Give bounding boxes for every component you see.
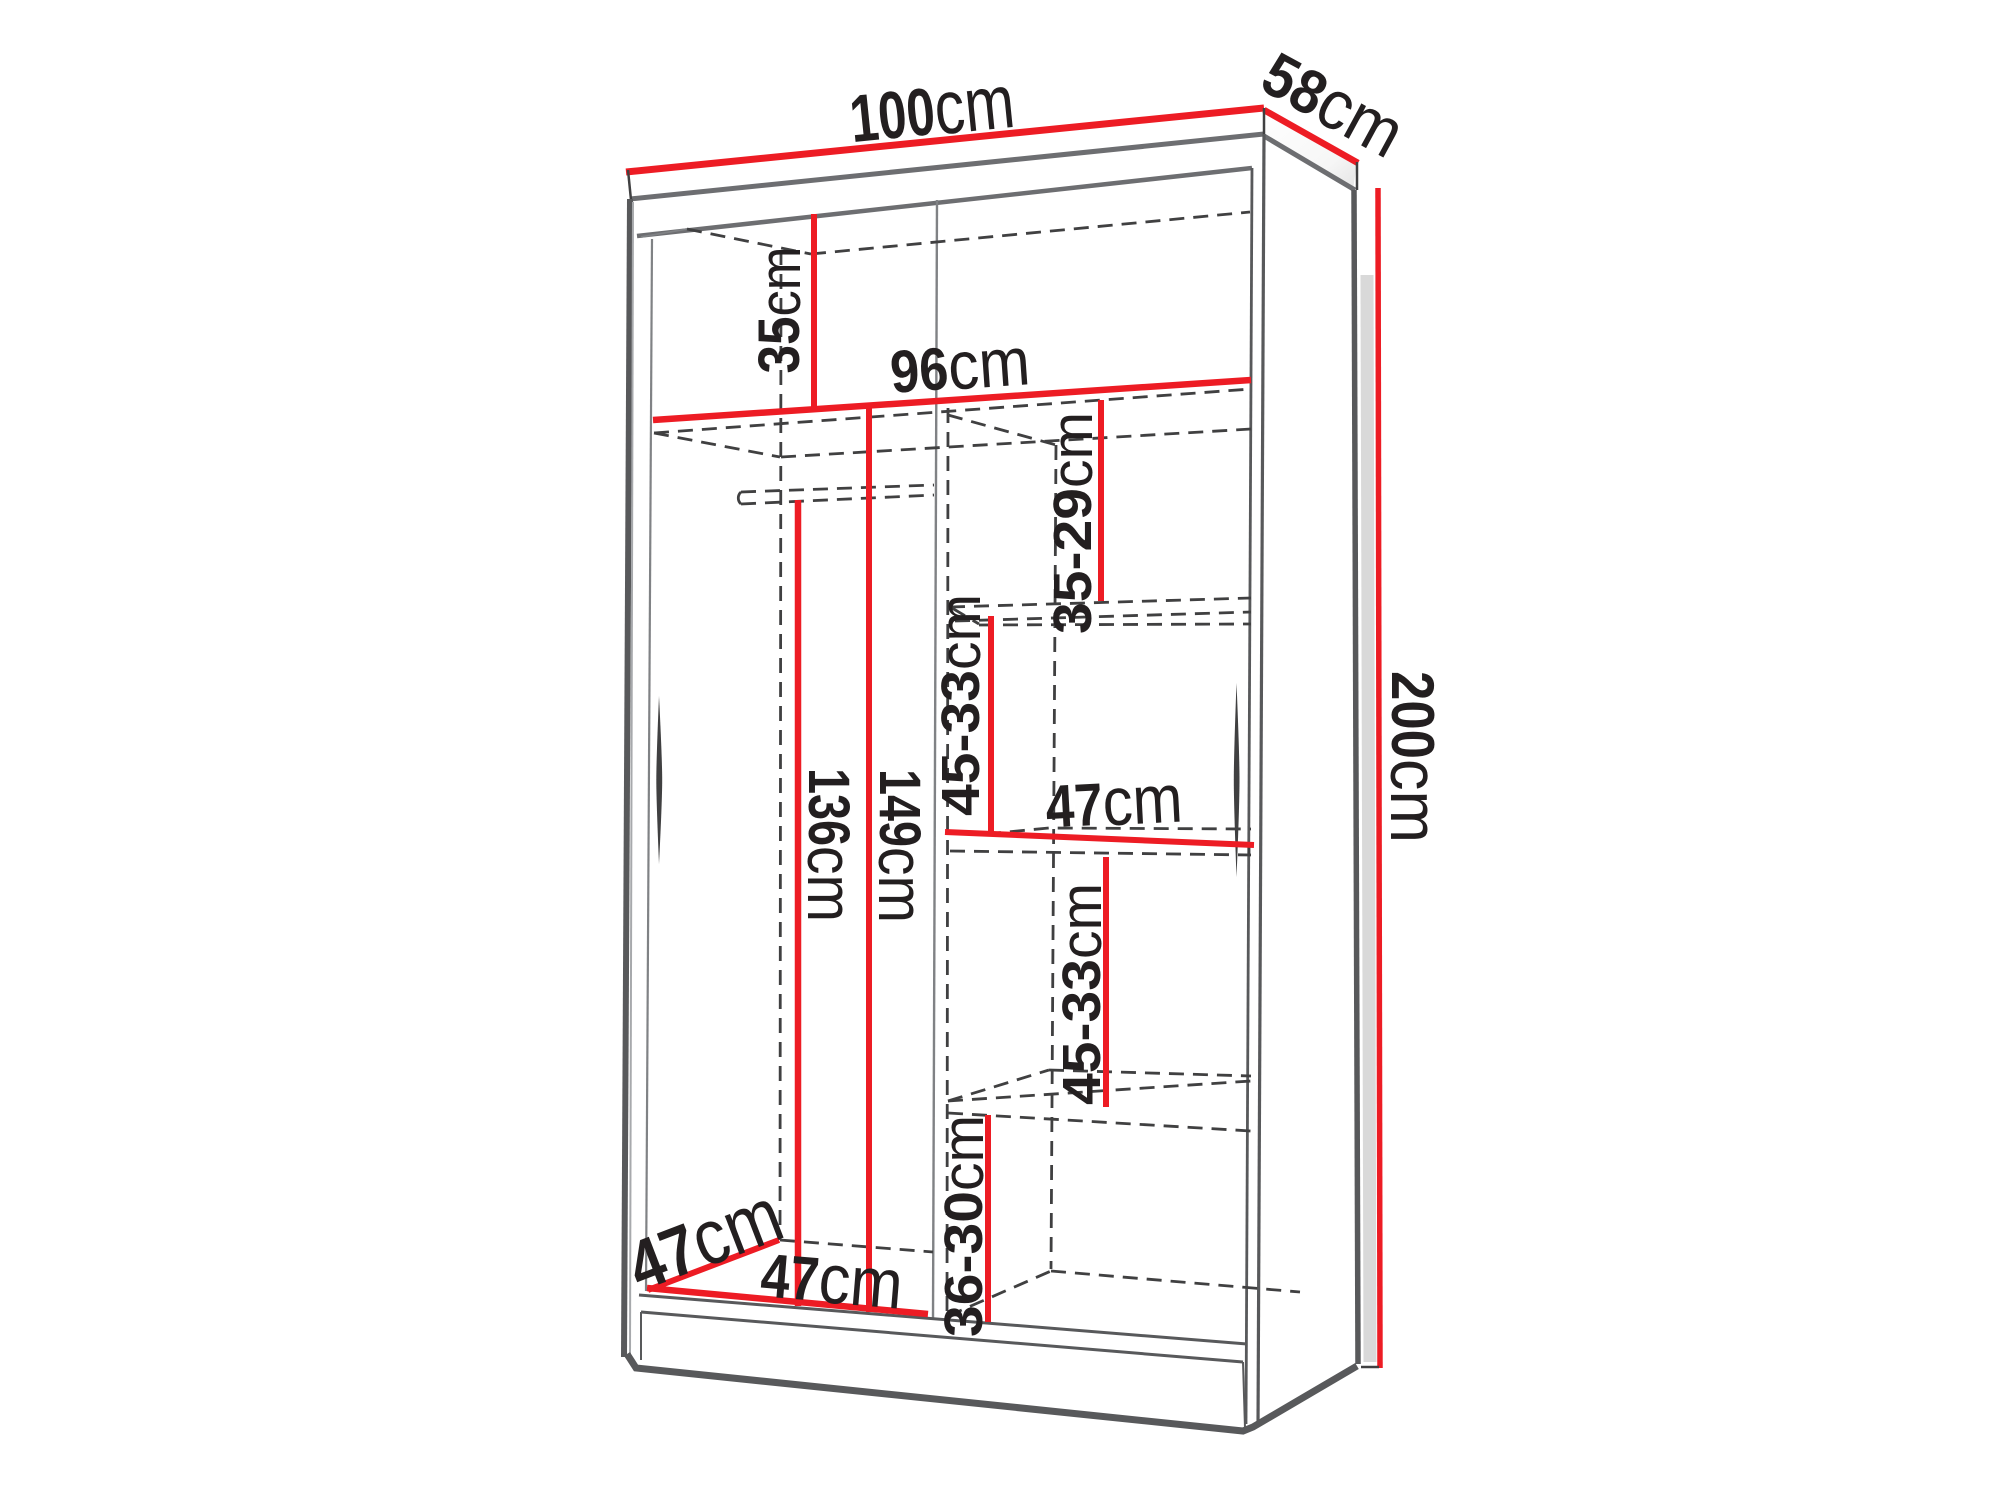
svg-text:45-33cm: 45-33cm	[1049, 883, 1114, 1105]
svg-text:100cm: 100cm	[846, 59, 1019, 160]
svg-text:136cm: 136cm	[794, 768, 866, 922]
svg-text:45-33cm: 45-33cm	[928, 594, 993, 816]
svg-text:200cm: 200cm	[1376, 671, 1452, 843]
svg-text:149cm: 149cm	[865, 769, 937, 923]
svg-text:36-30cm: 36-30cm	[931, 1115, 996, 1337]
svg-text:35cm: 35cm	[747, 247, 813, 374]
svg-text:35-29cm: 35-29cm	[1040, 412, 1105, 634]
svg-text:96cm: 96cm	[888, 323, 1033, 409]
svg-text:47cm: 47cm	[1044, 760, 1185, 843]
